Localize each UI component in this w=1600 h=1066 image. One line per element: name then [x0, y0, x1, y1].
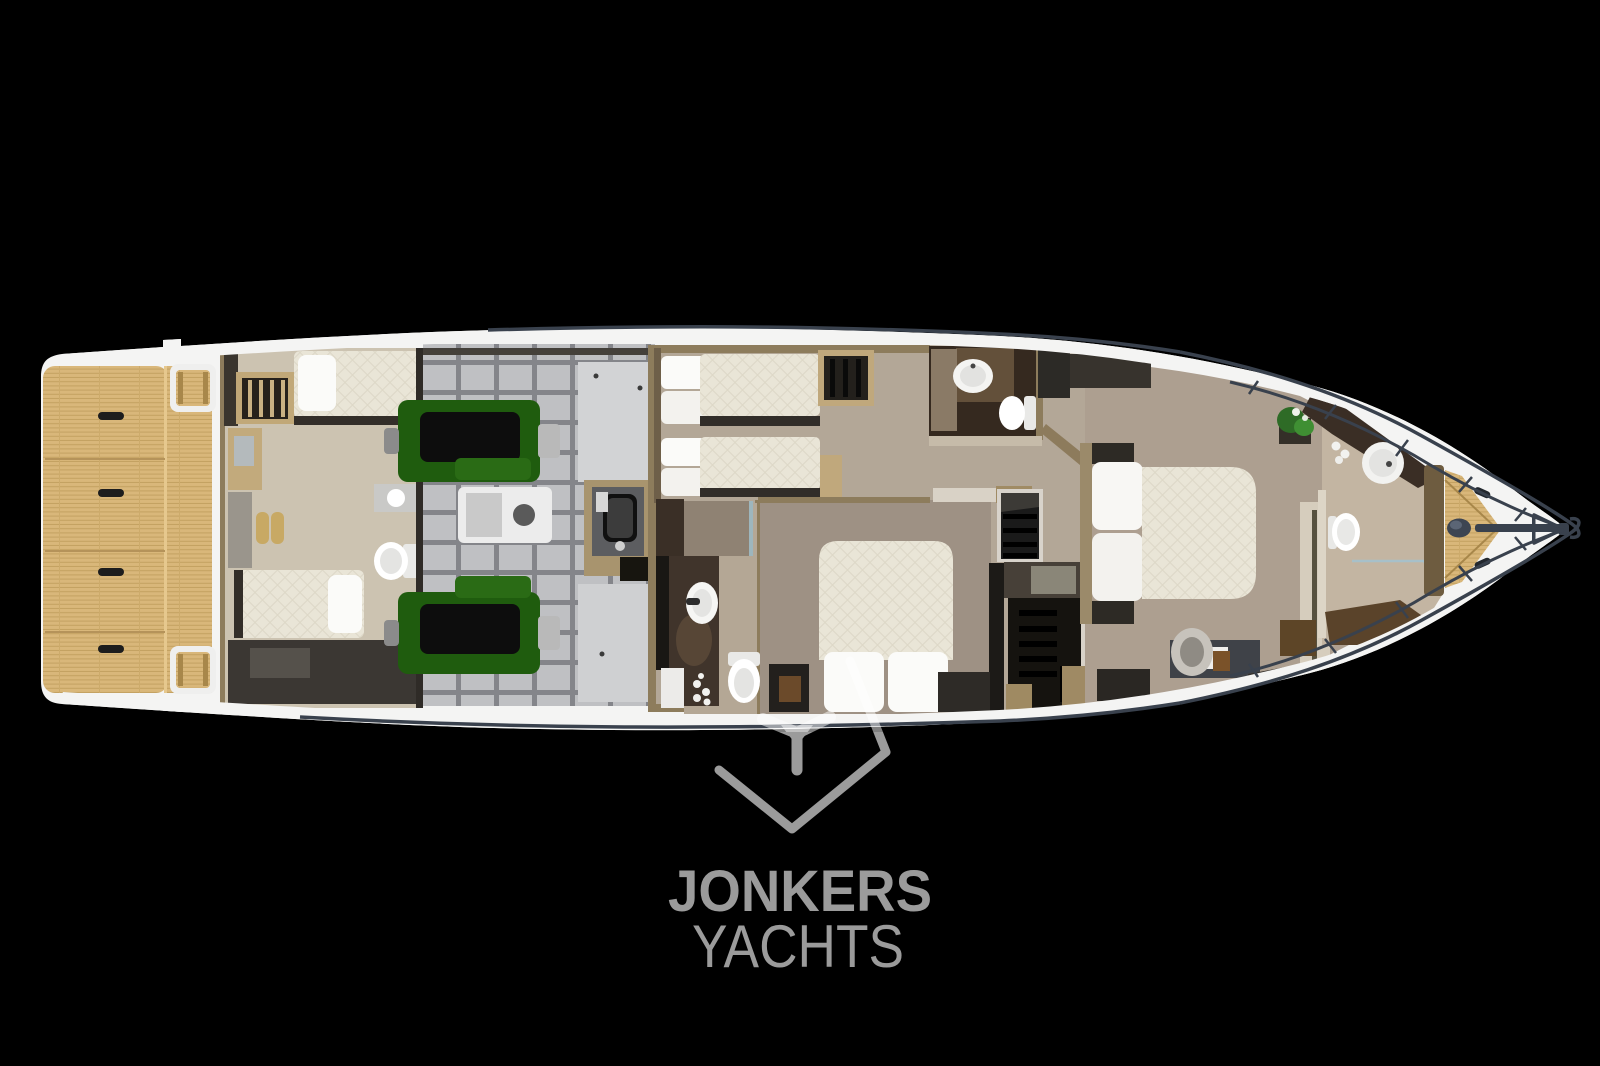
- svg-text:YACHTS: YACHTS: [692, 913, 904, 980]
